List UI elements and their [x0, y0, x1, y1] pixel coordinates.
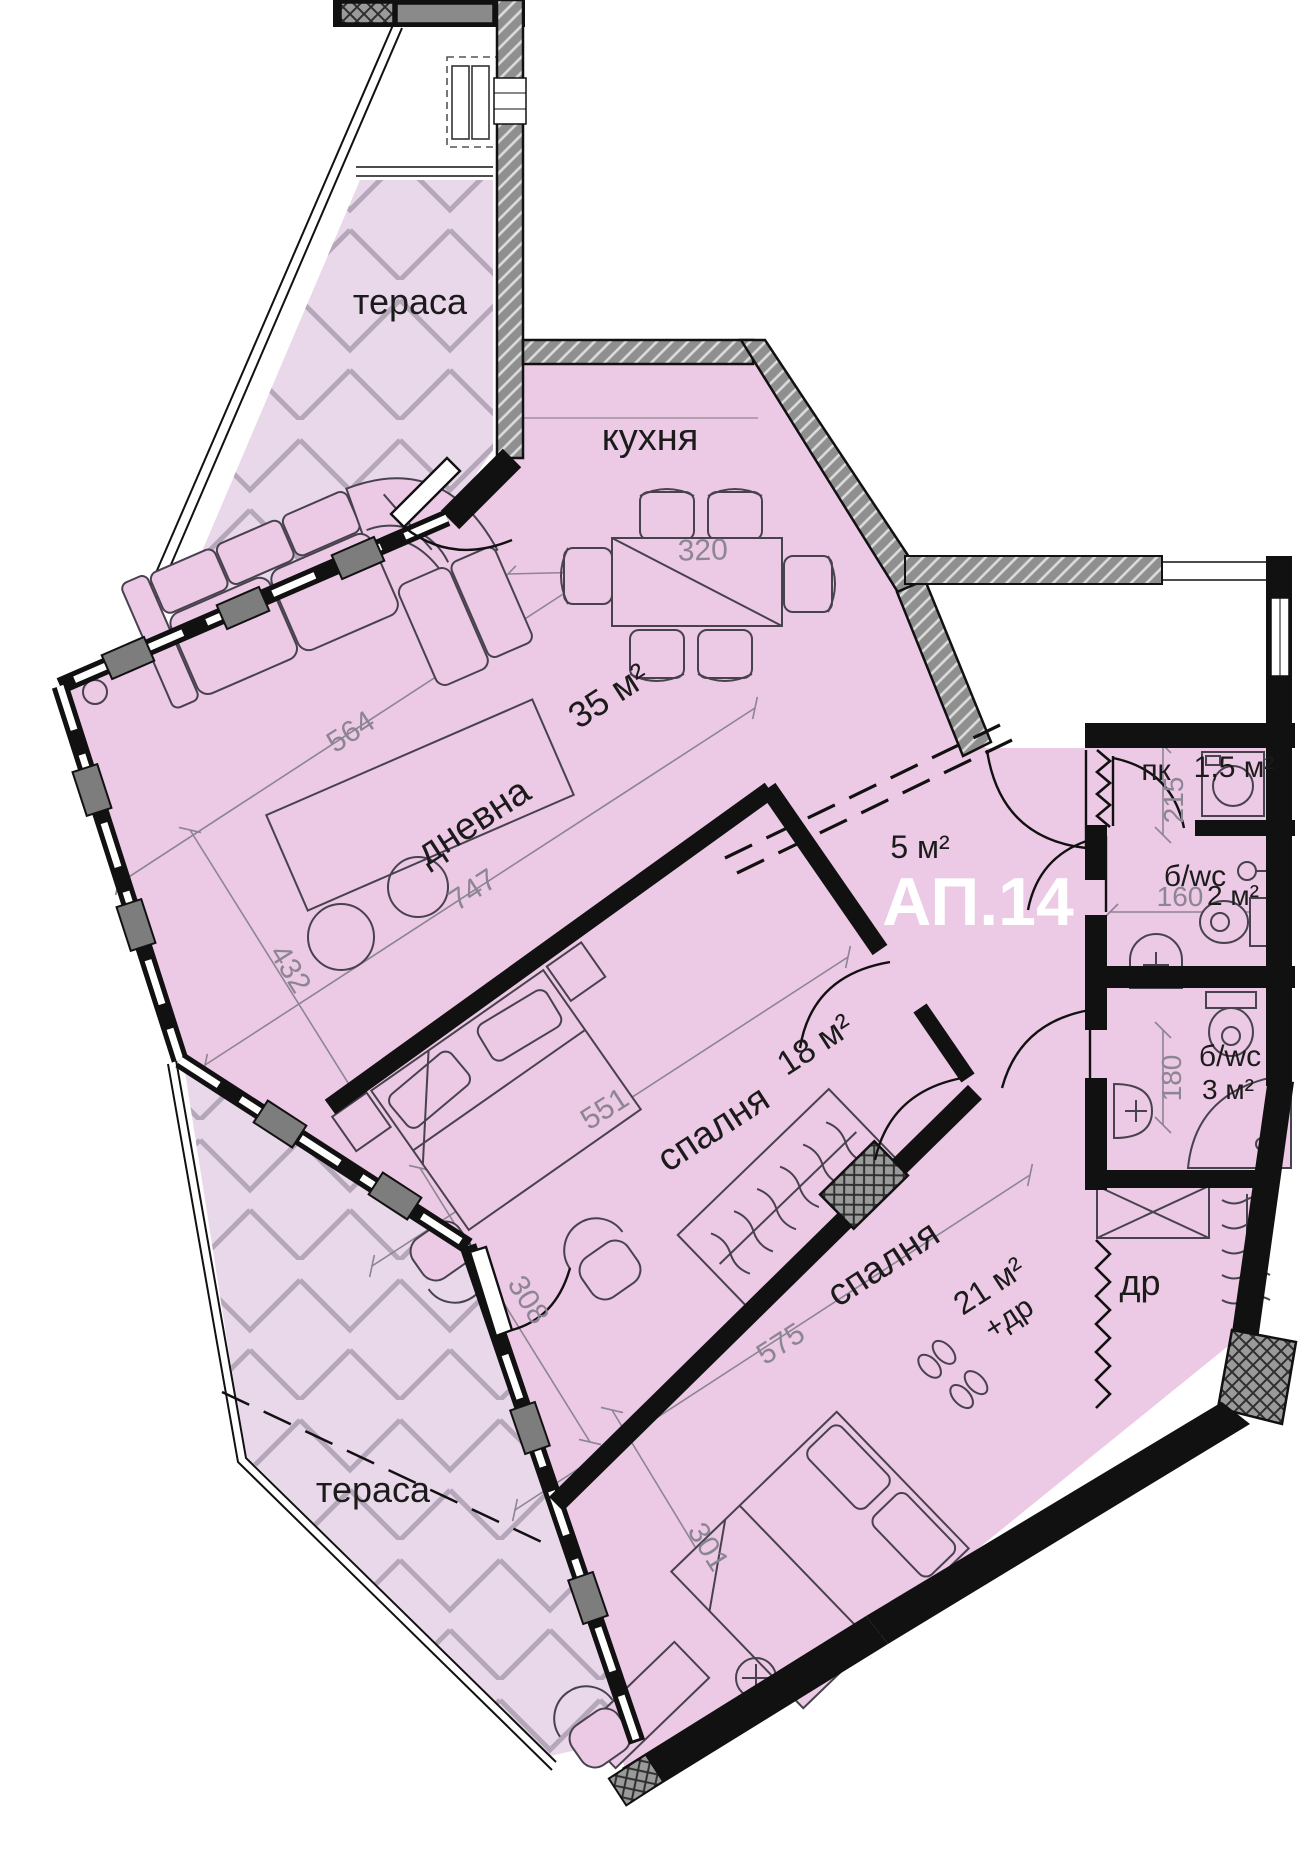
area-storage: 1,5 м² [1194, 751, 1275, 784]
label-kitchen: кухня [602, 417, 699, 459]
dining-chair [561, 548, 612, 604]
dim-160: 160 [1157, 881, 1204, 912]
column-crosshatch [341, 3, 393, 23]
area-bath1: 2 м² [1207, 880, 1259, 911]
label-terrace-bottom: тераса [316, 1469, 431, 1510]
unit-number: АП.14 [882, 864, 1074, 940]
porch-equipment-box [447, 57, 497, 147]
floor-plan-svg: тераса кухня 320 35 м² 564 дневна 747 43… [0, 0, 1300, 1860]
area-hall: 5 м² [890, 829, 950, 865]
dim-215: 215 [1158, 777, 1189, 824]
corridor-wall [905, 556, 1162, 584]
label-terrace-top: тераса [353, 281, 468, 322]
wall-storage-bath1 [1195, 820, 1295, 836]
dining-chair [784, 556, 835, 612]
dim-320: 320 [677, 533, 728, 567]
dining-chair [640, 489, 694, 540]
wall-bath2-closet [1092, 1170, 1272, 1188]
wall-bath1-bath2 [1085, 966, 1295, 988]
floor-plan-page: тераса кухня 320 35 м² 564 дневна 747 43… [0, 0, 1300, 1860]
area-bath2: 3 м² [1202, 1074, 1254, 1105]
label-closet: др [1119, 1262, 1160, 1303]
dining-chair [708, 489, 762, 540]
dining-chair [698, 630, 752, 681]
dim-180: 180 [1156, 1055, 1187, 1102]
label-bath2: б/wc [1199, 1040, 1261, 1073]
